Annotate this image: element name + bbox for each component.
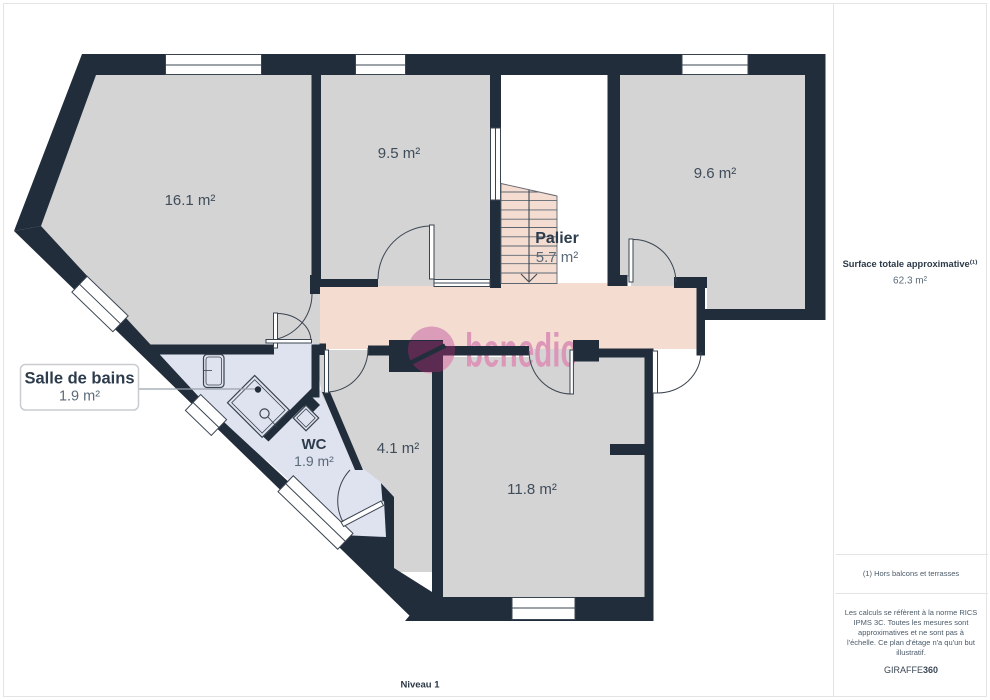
- svg-text:1.9 m²: 1.9 m²: [59, 389, 100, 405]
- svg-text:approximatives et ne sont pas: approximatives et ne sont pas à: [858, 628, 965, 637]
- svg-text:Niveau 1: Niveau 1: [400, 680, 440, 691]
- svg-text:WC: WC: [302, 436, 327, 453]
- svg-text:l'échelle. Ce plan d'étage n'a: l'échelle. Ce plan d'étage n'a qu'un but: [847, 638, 976, 647]
- svg-text:Surface totale approximative⁽¹: Surface totale approximative⁽¹⁾: [843, 259, 978, 269]
- svg-text:11.8 m²: 11.8 m²: [507, 481, 557, 498]
- svg-text:Les calculs se réfèrent à la n: Les calculs se réfèrent à la norme RICS: [845, 608, 978, 617]
- svg-text:illustratif.: illustratif.: [896, 648, 926, 657]
- svg-text:GIRAFFE360: GIRAFFE360: [884, 665, 938, 675]
- svg-text:5.7 m²: 5.7 m²: [536, 249, 579, 266]
- svg-text:4.1 m²: 4.1 m²: [377, 440, 420, 457]
- svg-text:Salle de bains: Salle de bains: [24, 370, 134, 388]
- svg-text:62.3 m²: 62.3 m²: [893, 276, 928, 287]
- svg-text:9.5 m²: 9.5 m²: [378, 145, 421, 162]
- svg-text:(1) Hors balcons et terrasses: (1) Hors balcons et terrasses: [863, 569, 960, 578]
- svg-text:Palier: Palier: [535, 230, 579, 247]
- svg-text:9.6 m²: 9.6 m²: [694, 165, 737, 182]
- svg-text:16.1 m²: 16.1 m²: [165, 192, 216, 209]
- svg-text:1.9 m²: 1.9 m²: [294, 453, 334, 469]
- svg-text:IPMS 3C. Toutes les mesures so: IPMS 3C. Toutes les mesures sont: [854, 618, 970, 627]
